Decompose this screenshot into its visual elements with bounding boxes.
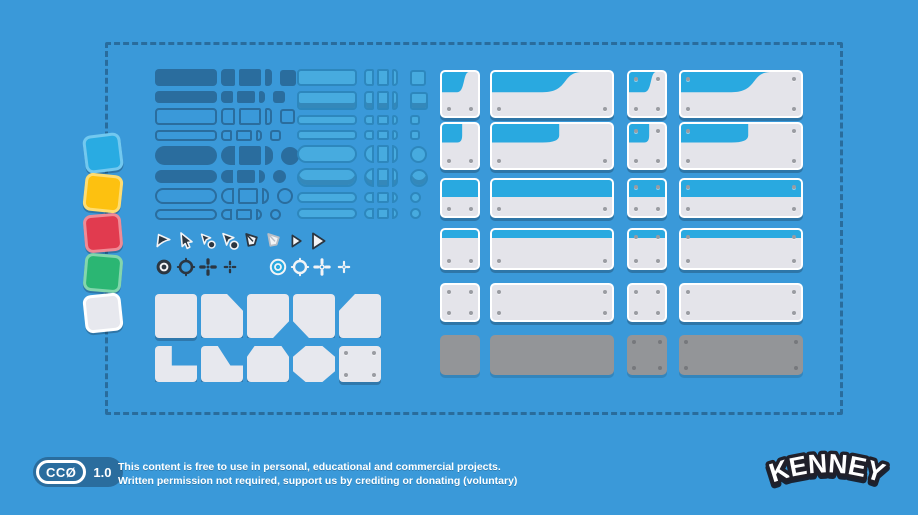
panel-header-strip-small [627,228,667,270]
light-button-cap-left [364,115,374,125]
screw-dot [634,259,638,263]
screw-dot [372,373,376,377]
panel-header-swoosh-wide [679,70,803,118]
screw-dot [792,107,796,111]
dark-button-cap-left [221,91,233,103]
color-square-red [82,212,123,253]
panel-header-flat-small [440,178,480,218]
kenney-logo: KENNEY [763,440,891,500]
crosshair-plus-white-small-icon [334,257,354,277]
dark-button-long [155,69,217,86]
dark-button-cap-right [256,209,262,220]
screw-dot [469,159,473,163]
screw-dot [684,340,688,344]
dark-button-circle [270,209,281,220]
panel-header-swoosh [681,72,801,116]
screw-dot [372,351,376,355]
screw-dot [684,366,688,370]
key-bevel-tl [339,294,381,338]
key-bevel-tr [201,294,243,338]
light-button-circle [410,146,427,163]
panel-header-flat [442,180,478,197]
panel-header-swoosh-small [440,70,480,118]
screw-dot [686,290,690,294]
light-button-circle [410,169,428,187]
screw-dot [686,311,690,315]
panel-header-tab [492,124,612,168]
screw-dot [656,129,660,133]
dark-button-square [273,91,285,103]
light-button-long [297,91,357,110]
light-button-cap-right [392,168,398,187]
cursor-kite-dark-icon [242,231,262,251]
light-button-row-pill-flat [297,208,428,219]
screw-dot [603,290,607,294]
screw-dot [632,340,636,344]
dark-button-row-rect-filled [155,69,299,86]
screw-dot [634,311,638,315]
light-button-long [297,145,357,163]
panel-header-tab-small [440,122,480,170]
dark-button-cap-right [259,170,265,183]
screw-dot [634,290,638,294]
color-square-green [82,252,123,293]
cursor-samples [154,231,328,251]
screw-dot [794,366,798,370]
screw-dot [603,207,607,211]
panel-gray-wide [490,335,614,375]
light-button-middle [377,168,389,187]
panel-gray-small [440,335,480,375]
light-button-middle [377,145,389,163]
panel-header-tab [681,124,801,168]
svg-text:KENNEY: KENNEY [766,448,889,488]
light-button-row-rect-raised [297,91,428,110]
screw-dot [686,107,690,111]
screw-dot [634,129,638,133]
key-octagon [293,346,335,382]
light-button-long [297,168,357,187]
screw-dot [686,207,690,211]
key-square [155,294,197,338]
light-button-cap-left [364,208,374,219]
dark-button-cap-left [221,69,235,86]
color-square-yellow [82,172,124,214]
asset-pack-preview: CCØ 1.0 This content is free to use in p… [0,0,918,515]
key-square-screws [339,346,381,382]
screw-dot [792,290,796,294]
cc0-logo: CCØ [36,460,86,484]
dark-button-row-pill-filled [155,170,299,183]
screw-dot [658,340,662,344]
screw-dot [656,259,660,263]
light-button-middle [377,91,389,110]
panel-header-strip [681,230,801,238]
light-button-square [410,92,428,110]
screw-dot [686,185,690,189]
panel-header-swoosh [492,72,612,116]
panel-plain-wide [679,283,803,322]
light-button-square [410,70,426,86]
dark-button-long [155,91,217,103]
light-button-row-pill-raised [297,168,428,187]
light-button-long [297,69,357,86]
panel-header-strip-wide [490,228,614,270]
dark-button-cap-left [221,170,233,183]
screw-dot [656,235,660,239]
light-button-cap-left [364,91,374,110]
dark-button-long [155,130,217,141]
screw-dot [632,366,636,370]
screw-dot [634,77,638,81]
dark-button-middle [237,91,255,103]
screw-dot [792,207,796,211]
screw-dot [656,185,660,189]
screw-dot [686,259,690,263]
dark-button-cap-right [262,188,269,204]
light-button-row-pill-flat [297,145,428,163]
screw-dot [603,159,607,163]
panel-header-strip-wide [679,228,803,270]
cursor-arrow-classic-icon [176,231,196,251]
dark-button-middle [239,146,261,165]
screw-dot [792,311,796,315]
dark-button-cap-left [221,188,234,204]
screw-dot [447,159,451,163]
panel-header-swoosh-small [627,70,667,118]
light-button-cap-right [392,69,398,86]
light-button-cap-left [364,130,374,140]
kenney-logo-text: KENNEY [766,448,889,488]
crosshair-ring-white-icon [290,257,310,277]
dark-button-long [155,188,217,204]
dark-button-middle [237,170,255,183]
panel-header-tab-small [627,122,667,170]
light-button-long [297,115,357,125]
light-button-row-pill-flat [297,192,428,203]
cursor-kite-light-icon [264,231,284,251]
screw-dot [603,107,607,111]
dark-button-cap-right [265,69,272,86]
dark-button-square [280,109,295,124]
panel-gray-wide [679,335,803,375]
dark-button-cap-right [265,146,273,165]
dark-button-long [155,170,217,183]
screw-dot [656,311,660,315]
light-button-circle [410,192,421,203]
light-button-square [410,130,420,140]
screw-dot [656,159,660,163]
dark-button-row-rect-outline [155,108,299,125]
screw-dot [344,373,348,377]
color-square-white [82,292,124,334]
screw-dot [447,107,451,111]
screw-dot [634,107,638,111]
light-button-cap-left [364,69,374,86]
light-button-middle [377,115,389,125]
dark-button-cap-right [265,108,272,125]
light-button-middle [377,69,389,86]
screw-dot [447,259,451,263]
key-row-1 [155,294,381,338]
screw-dot [686,235,690,239]
crosshair-plus-white-icon [312,257,332,277]
dark-button-samples [155,69,299,220]
screw-dot [469,107,473,111]
screw-dot [603,311,607,315]
screw-dot [792,129,796,133]
panel-header-strip [492,230,612,238]
dark-button-row-pill-outline [155,188,299,204]
screw-dot [497,259,501,263]
key-bevel-br [247,294,289,338]
cursor-arrow-flat-icon [154,231,174,251]
panel-header-strip-small [440,228,480,270]
light-button-cap-right [392,91,398,110]
screw-dot [447,290,451,294]
dark-button-row-pill-outline [155,209,299,220]
dark-button-cap-right [256,130,262,141]
crosshair-ring-dark-icon [176,257,196,277]
cc0-label: CCØ [46,465,76,480]
light-button-square [410,115,420,125]
screw-dot [469,311,473,315]
crosshair-target-filled-dark-icon [154,257,174,277]
dark-button-row-rect-outline [155,130,299,141]
screw-dot [447,207,451,211]
screw-dot [447,311,451,315]
screw-dot [603,259,607,263]
panel-header-flat-wide [490,178,614,218]
light-button-middle [377,208,389,219]
screw-dot [497,290,501,294]
panel-plain-wide [490,283,614,322]
key-l-shape [155,346,197,382]
panel-header-tab-wide [679,122,803,170]
dark-button-cap-left [221,209,232,220]
light-button-middle [377,192,389,203]
light-button-cap-right [392,130,398,140]
license-text: This content is free to use in personal,… [118,461,517,488]
light-button-cap-right [392,208,398,219]
key-bevel-bl [293,294,335,338]
screw-dot [656,207,660,211]
dark-button-middle [239,108,261,125]
cc0-license-badge: CCØ 1.0 [33,457,123,487]
color-square-blue [82,132,124,174]
license-version: 1.0 [93,465,111,480]
screw-dot [792,159,796,163]
light-button-row-rect-flat [297,69,428,86]
screw-dot [794,340,798,344]
screw-dot [469,290,473,294]
panel-header-swoosh-wide [490,70,614,118]
key-l-slope [201,346,243,382]
cursor-arrow-busy-icon [220,231,240,251]
light-button-row-rect-flat [297,115,428,125]
light-button-cap-left [364,168,374,187]
dark-button-cap-left [221,108,235,125]
cursor-arrowhead-small-icon [286,231,306,251]
dark-button-cap-right [259,91,265,103]
light-button-circle [410,208,421,219]
panel-header-strip [442,230,478,238]
panel-plain-small [627,283,667,322]
screw-dot [792,259,796,263]
dark-button-circle [277,188,293,204]
panel-header-flat-small [627,178,667,218]
light-button-cap-right [392,145,398,163]
screw-dot [469,207,473,211]
dark-button-square [270,130,281,141]
dark-button-middle [238,188,258,204]
panel-header-flat [681,180,801,197]
light-button-cap-right [392,192,398,203]
dark-button-circle [273,170,286,183]
cursor-arrow-busy-small-icon [198,231,218,251]
light-button-long [297,208,357,219]
dark-button-row-rect-filled [155,91,299,103]
light-button-samples [297,69,428,219]
dark-button-middle [239,69,261,86]
light-button-row-rect-flat [297,130,428,140]
cursor-arrowhead-large-icon [308,231,328,251]
crosshair-samples [154,257,354,277]
screw-dot [634,159,638,163]
screw-dot [792,185,796,189]
panel-gray-small [627,335,667,375]
dark-button-long [155,108,217,125]
light-button-long [297,192,357,203]
crosshair-target-blue-icon [268,257,288,277]
panel-plain-small [440,283,480,322]
crosshair-plus-dark-icon [198,257,218,277]
key-row-2 [155,346,381,382]
screw-dot [497,107,501,111]
screw-dot [656,77,660,81]
screw-dot [792,235,796,239]
screw-dot [634,235,638,239]
license-line-2: Written permission not required, support… [118,475,517,489]
dark-button-middle [236,209,252,220]
dark-button-cap-left [221,146,235,165]
license-line-1: This content is free to use in personal,… [118,461,517,475]
screw-dot [497,207,501,211]
screw-dot [469,259,473,263]
screw-dot [656,290,660,294]
screw-dot [497,159,501,163]
screw-dot [344,351,348,355]
kenney-logo-svg: KENNEY [763,440,891,500]
panel-header-flat [492,180,612,197]
light-button-cap-left [364,192,374,203]
dark-button-square [280,70,296,86]
dark-button-cap-left [221,130,232,141]
dark-button-long [155,209,217,220]
dark-button-row-pill-filled [155,146,299,165]
screw-dot [658,366,662,370]
screw-dot [686,159,690,163]
light-button-middle [377,130,389,140]
light-button-long [297,130,357,140]
screw-dot [792,77,796,81]
dark-button-long [155,146,217,165]
screw-dot [497,311,501,315]
panel-header-tab-wide [490,122,614,170]
dark-button-middle [236,130,252,141]
light-button-cap-right [392,115,398,125]
screw-dot [656,107,660,111]
crosshair-plus-dark-small-icon [220,257,240,277]
panel-header-flat-wide [679,178,803,218]
screw-dot [686,129,690,133]
screw-dot [686,77,690,81]
screw-dot [634,185,638,189]
screw-dot [634,207,638,211]
key-trapezoid-top [247,346,289,382]
light-button-cap-left [364,145,374,163]
